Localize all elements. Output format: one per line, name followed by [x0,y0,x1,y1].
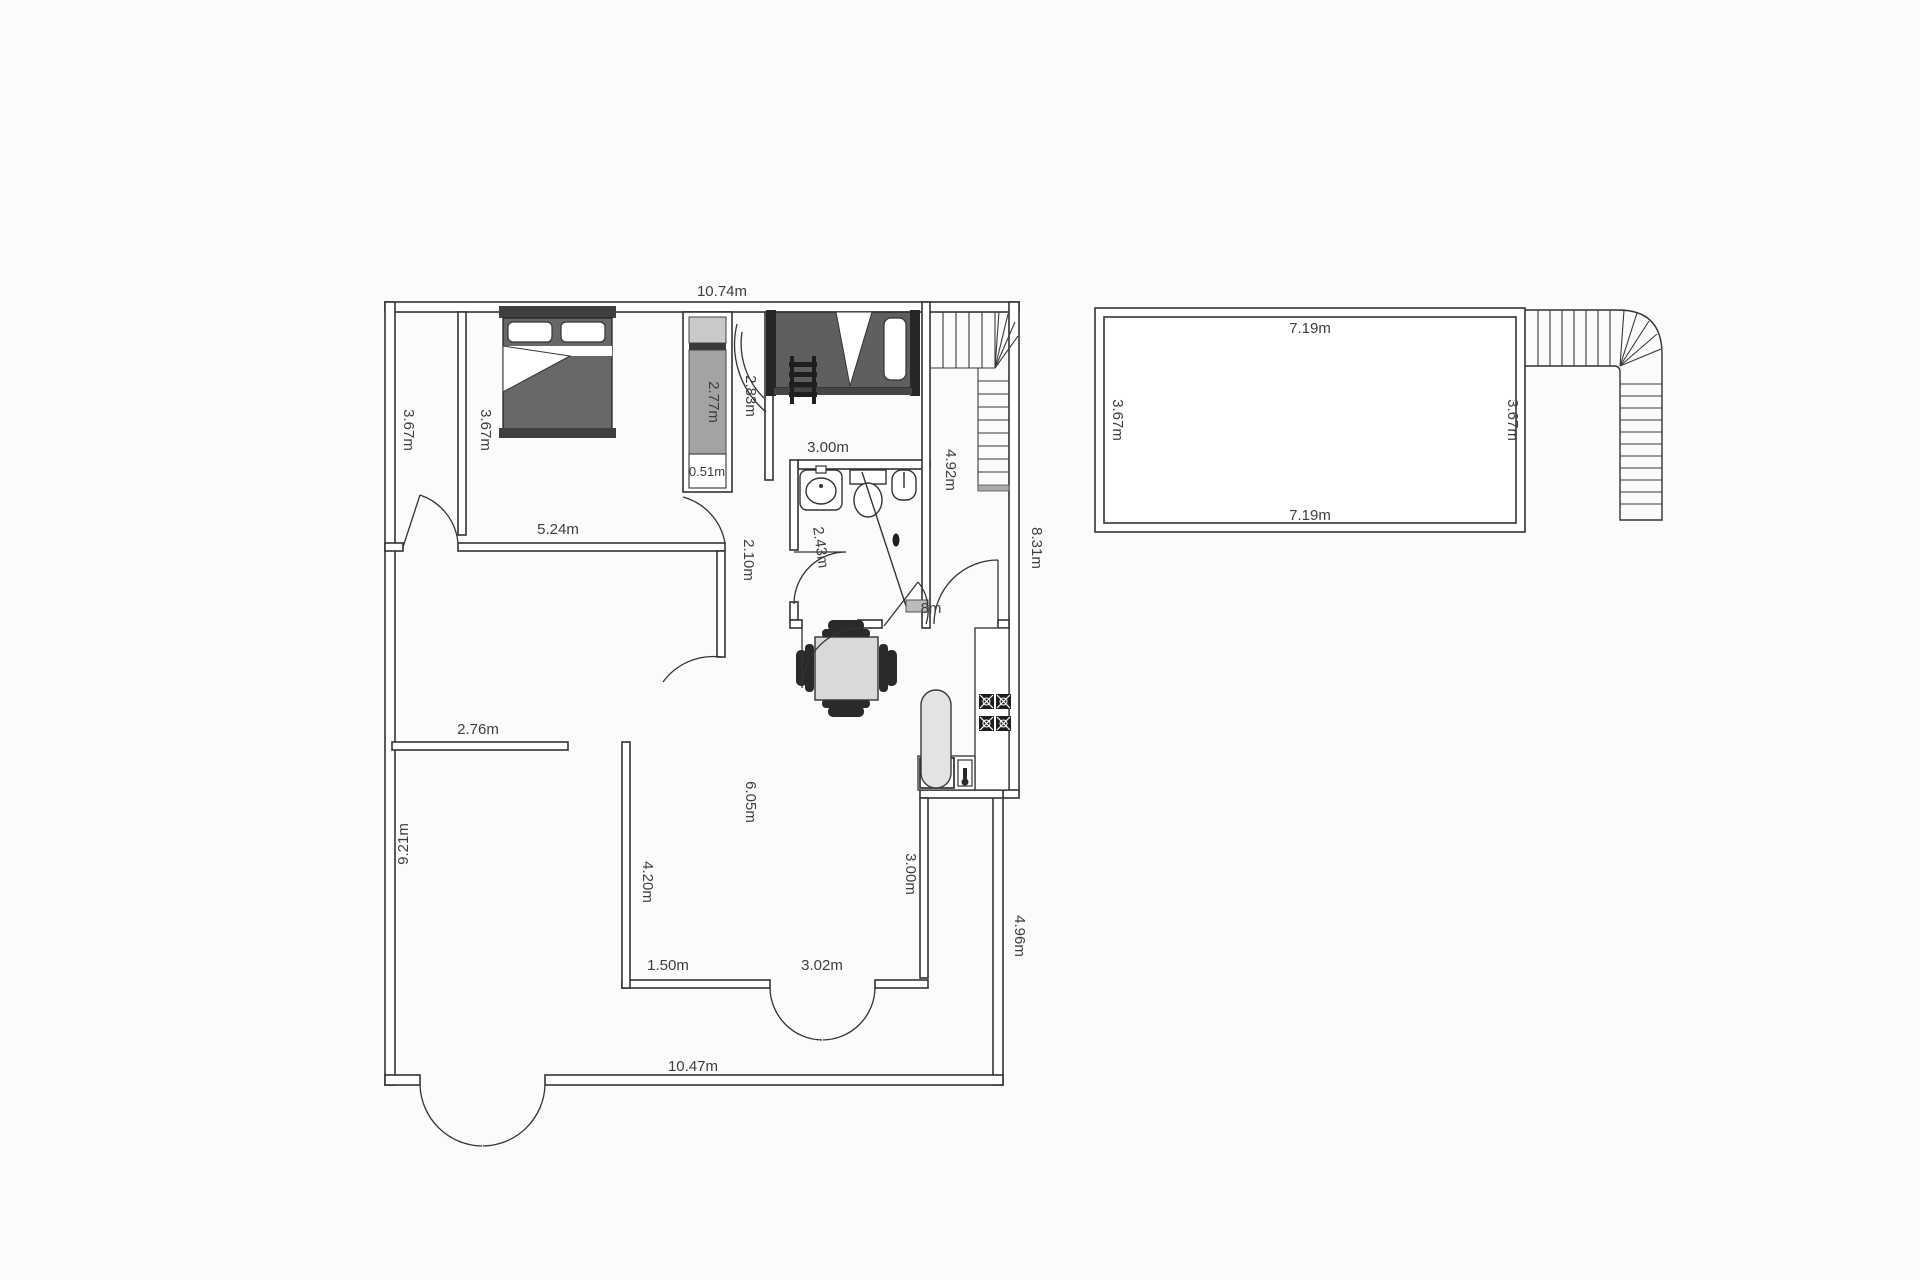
toilet-icon [850,470,886,517]
wall-den-right [622,742,630,988]
chair-left-seat [805,644,814,692]
dim-den-wall-width: 2.76m [457,721,499,738]
dim-kitchen-wall-height: 3.00m [902,853,919,895]
stair-landing-strip [978,485,1009,491]
wall-narrow-room-right [458,312,466,535]
wall-living-bottom-left [622,980,770,988]
wall-stair-hall-left [922,302,930,628]
dim-closet-length: 2.77m [705,381,722,423]
bunk-post-left [766,310,776,396]
bed-footboard [499,428,616,438]
wall-bathroom-left-upper [790,460,798,550]
outbuilding-inner-wall [1104,317,1516,523]
chair-right-seat [879,644,888,692]
dining-set [796,620,897,717]
bed-headboard [499,306,616,318]
dim-bathroom-door: 2.43m [809,526,832,570]
dim-outbuilding-top: 7.19m [1289,320,1331,337]
master-bed [499,306,616,438]
wall-bottom [545,1075,1003,1085]
wall-kitchen-bottom [920,790,1003,798]
floor-plan-canvas: DW [0,0,1920,1280]
dim-closet-width: 0.51m [689,464,725,479]
dim-bottom-seg-left: 1.50m [647,957,689,974]
board-stadium-shape [921,690,951,788]
wall-den-top [392,742,568,750]
door-entrance-left-leaf [420,1085,482,1146]
wall-bathroom-left-lower [790,602,798,620]
bunk-post-right [910,310,920,396]
door-bedroom1 [683,497,725,543]
wall-left [385,302,395,1085]
dim-stair-hall-height: 4.92m [942,449,959,491]
wall-bathroom-bottom-a [790,620,802,628]
dim-outbuilding-left: 3.67m [1109,399,1126,441]
door-narrow-room [403,495,458,547]
sink-icon [800,466,842,510]
wall-bedroom-bottom-stub [385,543,403,551]
dim-left-hall-height: 9.21m [395,823,412,865]
wall-kitchen-top-stub [998,620,1009,628]
outbuilding-stairs [1525,310,1662,520]
dim-outbuilding-right: 3.67m [1504,399,1521,441]
wall-bottom-left-stub [385,1075,420,1085]
wall-right-lower [993,790,1003,1085]
dim-outbuilding-bottom: 7.19m [1289,507,1331,524]
bunk-bed [766,310,920,404]
wall-kitchen-side [920,798,928,978]
dim-main-top-width: 10.74m [697,283,747,300]
dim-hall-wall: 2.10m [740,539,757,581]
door-living-right-leaf [823,988,875,1040]
dim-partial: 8m [921,600,942,617]
dim-bathroom-width: 3.00m [807,439,849,456]
closet-divider [689,343,726,350]
outbuilding [1095,308,1525,532]
dim-right-side-upper: 8.31m [1028,527,1045,569]
dining-table [815,637,878,700]
outbuilding-stairs-outline [1525,310,1662,520]
dim-right-side-lower: 4.96m [1011,915,1028,957]
door-kitchen [934,560,998,624]
dim-main-bottom-width: 10.47m [668,1058,718,1075]
bunk-pillow [884,318,906,380]
door-living-left-leaf [770,988,822,1040]
dim-bottom-seg-right: 3.02m [801,957,843,974]
bed-pillow-left [508,322,552,342]
kitchen-sink-icon [958,760,972,786]
dim-narrow-room-height: 3.67m [400,409,417,451]
closet-shelf [689,317,726,343]
wall-bedroom-bottom [458,543,725,551]
dim-den-wall-height: 4.20m [639,861,656,903]
wall-living-bottom-right [875,980,928,988]
door-entrance-right-leaf [483,1085,545,1146]
dim-bedroom2-height: 2.83m [742,375,759,417]
bed-pillow-right [561,322,605,342]
dim-bedroom1-height: 3.67m [477,409,494,451]
door-hallway-living [663,656,721,682]
dim-living-height: 6.05m [742,781,759,823]
dim-bedroom1-width: 5.24m [537,521,579,538]
wall-hall-210 [717,551,725,657]
